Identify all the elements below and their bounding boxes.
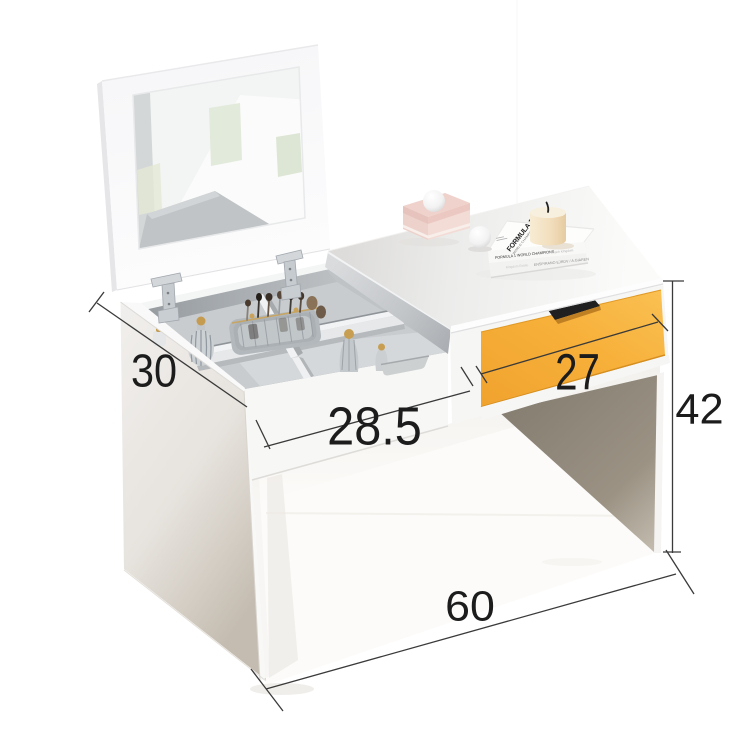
svg-text:27: 27 (555, 343, 600, 401)
svg-text:42: 42 (675, 386, 723, 434)
svg-text:28.5: 28.5 (327, 396, 422, 456)
svg-text:60: 60 (445, 582, 495, 630)
svg-text:30: 30 (131, 346, 177, 398)
